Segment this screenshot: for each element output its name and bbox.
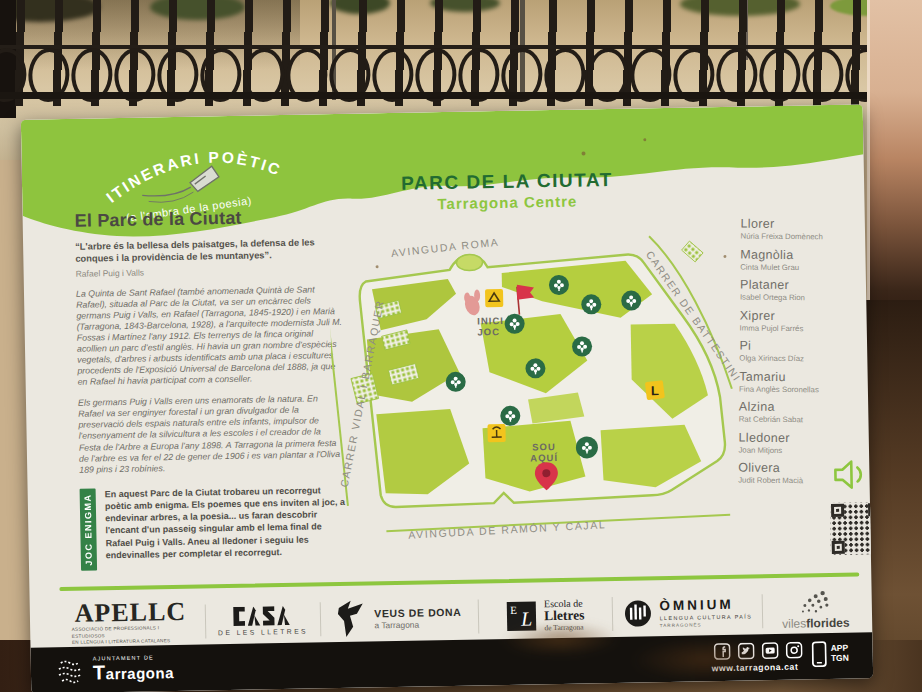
- quote-author: Rafael Puig i Valls: [76, 263, 342, 278]
- street-label-bottom: AVINGUDA DE RAMÓN Y CAJAL: [408, 518, 606, 541]
- here-label-2: AQUÍ: [530, 452, 558, 464]
- iron-fence: [0, 0, 922, 106]
- fence-rail: [0, 92, 922, 99]
- list-item: LledonerJoan Mitjons: [738, 430, 868, 455]
- dove-icon: [337, 600, 366, 639]
- quote: “L'arbre és la bellesa dels paisatges, l…: [75, 236, 341, 265]
- dirt-speck: [581, 151, 585, 155]
- list-item: PiOlga Xirinacs Díaz: [739, 339, 869, 364]
- park-map: AVINGUDA ROMA CARRER DE BATTESTINI CARRE…: [329, 226, 783, 568]
- list-item: TamariuFina Anglès Soronellas: [739, 369, 869, 394]
- game-description: En aquest Parc de la Ciutat trobareu un …: [96, 484, 347, 571]
- tarragona-waves-icon: [55, 655, 86, 686]
- app-tgn: APP TGN: [812, 641, 849, 668]
- logo-omnium: ÒMNIUM LLENGUA CULTURA PAÍS TARRAGONÈS: [613, 583, 763, 642]
- map-title-block: PARC DE LA CIUTAT Tarragona Centre: [352, 168, 663, 214]
- photo-scene: ITINERARI POÈTIC (a l'ombra de la poesia…: [0, 0, 922, 692]
- phone-icon: [812, 641, 827, 667]
- description-column: El Parc de la Ciutat “L'arbre és la bell…: [74, 206, 347, 571]
- list-item: LlorerNúria Freixa Domènech: [740, 217, 870, 242]
- paragraph-1: La Quinta de Sant Rafael (també anomenad…: [76, 283, 344, 388]
- museum-marker: [485, 289, 503, 307]
- list-item: MagnòliaCinta Mulet Grau: [740, 247, 870, 272]
- here-label-1: SOU: [532, 441, 556, 452]
- list-item: PlatanerIsabel Ortega Rion: [740, 278, 870, 303]
- list-item: XiprerImma Pujol Farrés: [740, 308, 870, 333]
- logo-apellc: APELLC ASSOCIACIÓ DE PROFESSIONALS I EST…: [56, 593, 206, 652]
- game-tab-label: JOC ENIGMA: [80, 488, 98, 570]
- dirt-speck: [723, 255, 726, 258]
- roundabout: [456, 254, 482, 270]
- park-information-sign: ITINERARI POÈTIC (a l'ombra de la poesia…: [21, 104, 873, 692]
- omnium-icon: [623, 599, 652, 628]
- street-label-top: AVINGUDA ROMA: [390, 236, 499, 259]
- page-title: El Parc de la Ciutat: [74, 206, 340, 232]
- qr-code: [830, 502, 873, 555]
- svg-text:L: L: [651, 383, 659, 398]
- logo-casa-lletres: DE LES LLETRES: [206, 591, 321, 649]
- pink-wall: [867, 0, 922, 330]
- fountain-marker: [487, 424, 505, 442]
- start-label-1: INICI: [477, 315, 504, 326]
- list-item: AlzinaRat Cebrián Sabat: [739, 400, 869, 425]
- dotted-tree-icon: [800, 590, 830, 615]
- paragraph-2: Els germans Puig i Valls eren uns enamor…: [78, 393, 345, 475]
- tree-poet-list: LlorerNúria Freixa Domènech MagnòliaCint…: [738, 217, 871, 493]
- logo-veus-de-dona: VEUS DE DONA a Tarragona: [320, 588, 479, 647]
- casa-glyph-icon: [232, 605, 294, 626]
- game-box: JOC ENIGMA En aquest Parc de la Ciutat t…: [80, 484, 347, 571]
- instagram-icon: [786, 642, 803, 659]
- lledoner-marker: L: [645, 380, 665, 400]
- logo-viles-florides: vilesflorides: [763, 581, 869, 639]
- audio-icon: [830, 456, 873, 493]
- dirt-speck: [376, 265, 379, 268]
- ajuntament-logo: AJUNTAMENT DE Tarragona: [55, 653, 174, 685]
- dirt-speck: [643, 138, 646, 141]
- start-label-2: JOC: [477, 326, 500, 337]
